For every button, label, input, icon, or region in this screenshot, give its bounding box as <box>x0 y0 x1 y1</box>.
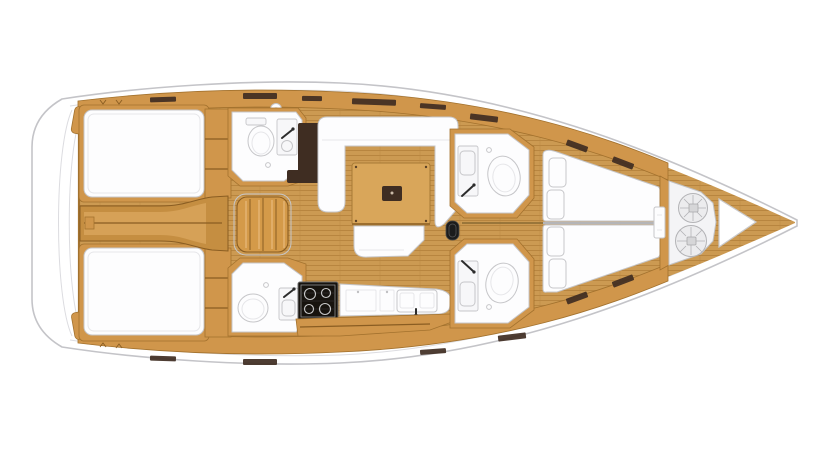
faucet-dot <box>472 183 475 186</box>
pillow <box>549 259 566 288</box>
wardrobe-cabinet <box>205 109 231 198</box>
pillow <box>549 158 566 187</box>
galley <box>296 282 452 336</box>
locker-slot <box>302 96 322 101</box>
toilet-tank <box>246 118 266 125</box>
faucet-dot <box>472 270 475 273</box>
locker-slot <box>243 93 277 99</box>
pillow <box>547 227 564 256</box>
aft-cabin-starboard <box>79 244 231 341</box>
wardrobe-cabinet <box>205 248 231 337</box>
locker-slot <box>150 356 176 362</box>
head-forward-starboard <box>450 239 534 328</box>
latch-dot <box>386 291 388 293</box>
bulkhead-bracket <box>654 207 665 238</box>
sink-counter <box>277 119 297 155</box>
rudder-linkage-box <box>85 217 94 229</box>
faucet-dot <box>292 287 295 290</box>
locker-slot <box>243 359 277 365</box>
companionway-steps <box>234 194 291 255</box>
windlass-hub <box>687 237 696 245</box>
double-berth-mattress <box>84 248 204 335</box>
head-aft-starboard <box>228 258 306 336</box>
faucet-dot <box>291 127 294 130</box>
aft-cabin-port <box>79 105 231 202</box>
head-forward-port <box>450 129 534 218</box>
dark-storage-strip <box>287 170 322 183</box>
yacht-floorplan-image <box>0 0 819 460</box>
windlass-hub <box>689 204 698 212</box>
double-berth-mattress <box>84 110 204 197</box>
locker-slot <box>150 97 176 103</box>
yacht-floorplan-svg <box>0 0 819 460</box>
insert-latch <box>391 192 394 195</box>
pillow <box>547 190 564 219</box>
latch-dot <box>357 291 359 293</box>
